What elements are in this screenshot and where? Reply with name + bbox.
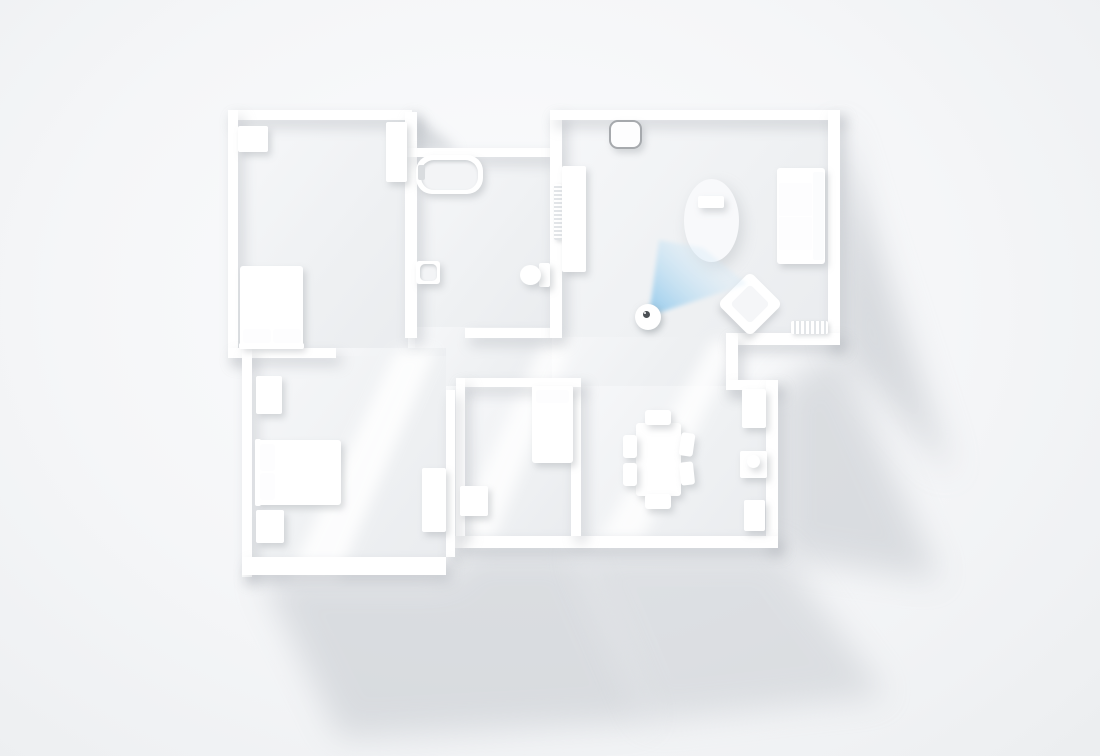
- bedroom-1-floor: [238, 118, 408, 352]
- bedroom1-bed: [240, 266, 303, 348]
- sofa-arm-top: [778, 168, 813, 181]
- dining-chair-top: [645, 410, 671, 425]
- sensor-lens-icon: [643, 311, 650, 318]
- wall-bedroom3-left: [456, 378, 465, 536]
- wall-bathroom-bottom: [465, 328, 552, 338]
- wall-living-left: [550, 110, 562, 338]
- bedroom1-pillow-left: [243, 329, 271, 343]
- living-room-floor: [560, 118, 830, 337]
- light-shaft-dining: [598, 340, 740, 540]
- toilet-tank: [539, 263, 550, 287]
- bedroom3-bed: [532, 386, 573, 463]
- sofa-base: [777, 168, 825, 264]
- media-console: [562, 166, 586, 272]
- shadow-below-dining: [575, 548, 886, 722]
- sofa-back: [813, 172, 824, 260]
- bedroom3-headboard: [532, 386, 573, 391]
- wall-bedroom1-bottom: [228, 348, 336, 358]
- coffee-table: [698, 196, 724, 208]
- rug: [684, 179, 739, 262]
- toilet-bowl: [520, 265, 541, 285]
- living-wall-radiator: [554, 184, 562, 240]
- shadow-notch-above-bathroom: [412, 112, 458, 150]
- bedroom3-pillow: [536, 390, 569, 403]
- bedroom-3-floor: [464, 386, 572, 538]
- bedroom2-bed: [256, 440, 341, 505]
- sofa-arm-bottom: [778, 251, 813, 264]
- bedroom2-pillow-top: [260, 444, 275, 471]
- hallway-floor-b: [336, 348, 446, 386]
- dining-chair-right-1: [678, 432, 695, 457]
- wall-living-bottom: [726, 333, 840, 345]
- sofa-seat-cushion-2: [779, 217, 812, 250]
- bedroom2-nightstand: [256, 510, 284, 543]
- wall-layer: [0, 0, 1100, 756]
- shadow-below-bedroom2: [260, 548, 650, 738]
- bedroom1-dresser: [238, 126, 268, 152]
- light-shaft-corridor: [452, 338, 574, 538]
- bathtub: [416, 155, 483, 194]
- wall-dining-top-right: [726, 380, 778, 390]
- sensor-cone: [649, 240, 747, 316]
- wall-bottom-long: [455, 536, 778, 548]
- bathtub-basin: [421, 160, 478, 190]
- bedroom2-pillow-bottom: [260, 473, 275, 500]
- wall-living-right: [828, 110, 840, 345]
- bathroom-sink-basin: [420, 264, 437, 281]
- wall-living-top: [550, 110, 840, 120]
- living-radiator: [791, 321, 828, 334]
- wall-bedroom1-left: [228, 110, 238, 358]
- exterior-shadow-layer: [0, 0, 1100, 756]
- dining-chair-left-2: [623, 463, 637, 486]
- bedroom1-pillow-right: [273, 329, 301, 343]
- sensor-lens-glint: [644, 312, 646, 314]
- bathtub-faucet: [418, 165, 425, 180]
- dining-chair-left-1: [623, 435, 637, 458]
- kitchen-cabinet-2: [740, 451, 767, 478]
- ceiling-lamp: [609, 120, 642, 149]
- kitchen-kettle: [747, 455, 760, 468]
- light-shaft-hallway: [288, 350, 436, 577]
- floor-layer: [0, 0, 1100, 756]
- hallway-floor-a: [415, 327, 552, 386]
- wall-bedroom1-top: [228, 110, 412, 120]
- wall-bedroom1-bathroom-divider: [405, 112, 417, 338]
- living-dining-connector-floor: [552, 337, 730, 386]
- light-shaft-layer: [0, 0, 1100, 756]
- armchair: [717, 271, 782, 336]
- bedroom3-cabinet: [460, 486, 488, 516]
- wall-bedroom2-left: [242, 348, 252, 577]
- motion-sensor-device: [635, 304, 661, 330]
- wall-dining-right: [766, 380, 778, 548]
- furniture-layer: [0, 0, 1100, 756]
- bedroom2-wardrobe-right: [422, 468, 446, 532]
- wall-bathroom-top: [405, 148, 552, 157]
- dining-chair-bottom: [645, 494, 671, 509]
- bedroom-2-floor: [250, 356, 446, 559]
- wall-bedroom2-bottom: [242, 557, 446, 575]
- kitchen-cabinet-3: [744, 500, 765, 531]
- wall-bedroom3-top: [456, 378, 581, 387]
- wall-bedroom3-dining-divider: [571, 380, 581, 536]
- dining-table: [636, 423, 681, 496]
- sofa-seat-cushion-1: [779, 183, 812, 216]
- wall-bedroom2-right: [446, 390, 455, 557]
- apartment-floorplan-3d-render: [0, 0, 1100, 756]
- dining-chair-right-2: [679, 461, 695, 485]
- bathroom-sink: [416, 261, 440, 284]
- shadow-right-of-dining: [778, 348, 940, 580]
- sensor-cone-layer: [0, 0, 1100, 756]
- bathroom-floor: [415, 155, 552, 330]
- dining-kitchen-floor: [580, 386, 768, 538]
- sensor-device-layer: [0, 0, 1100, 756]
- armchair-seat: [730, 284, 770, 324]
- bedroom2-wardrobe-top: [256, 376, 282, 414]
- bedroom2-headboard: [255, 439, 261, 506]
- bedroom1-closet: [386, 122, 407, 182]
- kitchen-cabinet-1: [742, 389, 766, 428]
- shadow-right-of-living: [838, 118, 952, 476]
- wall-stub-vertical: [726, 333, 738, 389]
- bedroom1-headboard: [239, 343, 304, 349]
